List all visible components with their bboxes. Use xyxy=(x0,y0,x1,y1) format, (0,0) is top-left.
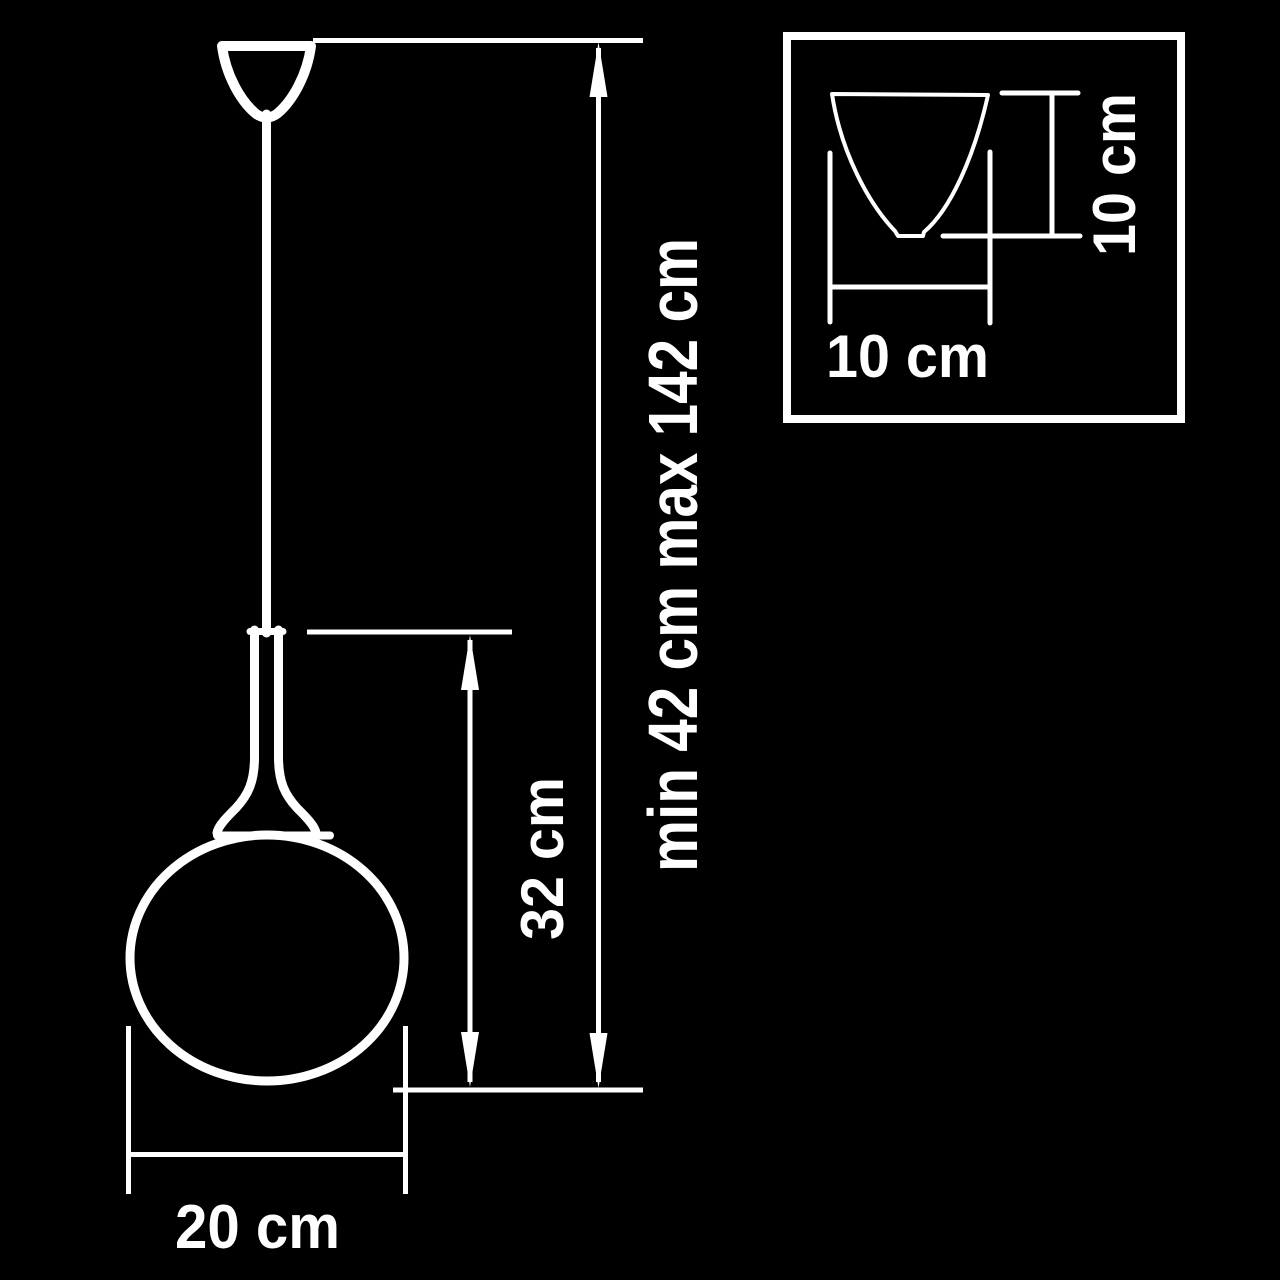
inset-canopy-height-label: 10 cm xyxy=(1081,93,1148,256)
shade-height-label: 32 cm xyxy=(509,777,576,940)
overall-height-label: min 42 cm max 142 cm xyxy=(634,238,712,872)
dimension-diagram: min 42 cm max 142 cm 32 cm 20 cm 10 cm 1… xyxy=(0,0,1280,1280)
shade-diameter-label: 20 cm xyxy=(175,1193,340,1262)
pendant-lamp-dimension-drawing: min 42 cm max 142 cm 32 cm 20 cm 10 cm 1… xyxy=(0,0,1280,1280)
inset-canopy-width-label: 10 cm xyxy=(826,323,989,390)
